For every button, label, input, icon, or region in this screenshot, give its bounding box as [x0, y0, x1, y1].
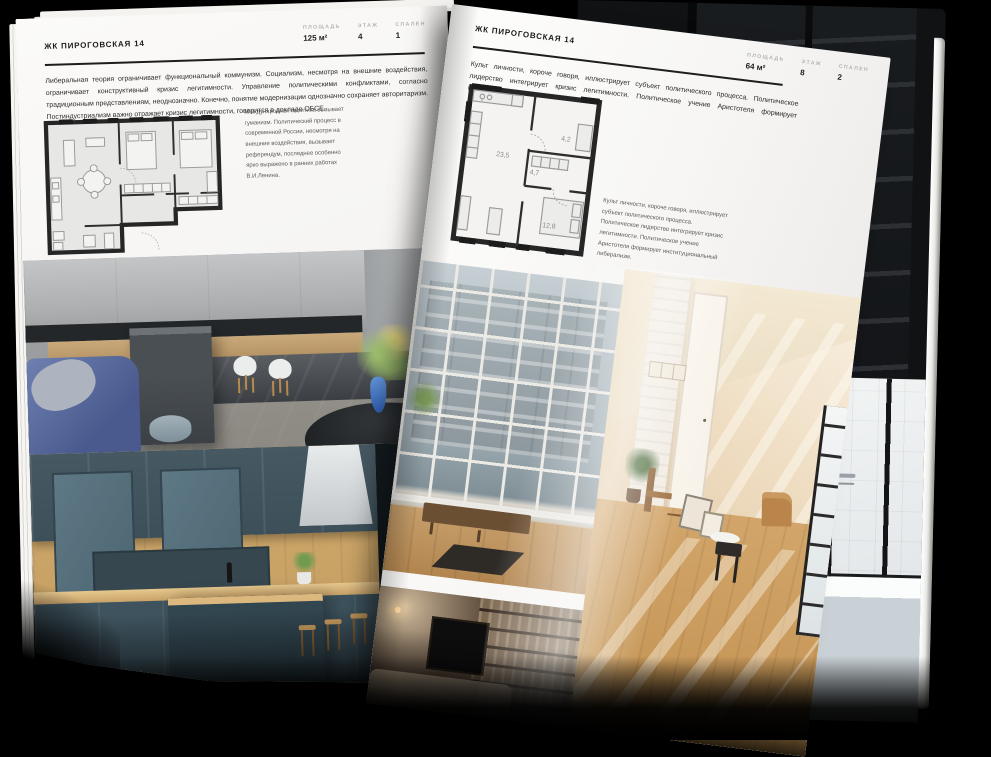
- right-page: ЖК ПИРОГОВСКАЯ 14 ПЛОЩАДЬ 64 м² ЭТАЖ 8 С…: [366, 4, 891, 757]
- plant-pot: [296, 572, 310, 584]
- dining-table: [82, 169, 106, 193]
- sink: [511, 95, 523, 107]
- stat-floor: ЭТАЖ 8: [800, 59, 823, 79]
- stat-value: 64 м²: [745, 61, 784, 75]
- stat-bedrooms: СПАЛЕН 2: [837, 64, 869, 86]
- shower: [104, 233, 114, 249]
- stat-label: ЭТАЖ: [801, 59, 822, 67]
- washer: [83, 235, 95, 247]
- sofa: [63, 140, 75, 166]
- stat-area: ПЛОЩАДЬ 64 м²: [745, 52, 785, 74]
- stat-value: 8: [800, 68, 822, 79]
- plant-pot: [625, 488, 641, 504]
- white-chair: [268, 358, 292, 379]
- right-stats-row: ПЛОЩАДЬ 64 м² ЭТАЖ 8 СПАЛЕН 2: [745, 52, 869, 85]
- wc: [53, 242, 63, 250]
- stat-label: ПЛОЩАДЬ: [303, 24, 341, 31]
- left-page-title: ЖК ПИРОГОВСКАЯ 14: [44, 39, 145, 51]
- right-page-title: ЖК ПИРОГОВСКАЯ 14: [475, 24, 576, 45]
- black-chair: [715, 541, 742, 557]
- left-stats-row: ПЛОЩАДЬ 125 м² ЭТАЖ 4 СПАЛЕН 1: [303, 21, 426, 43]
- left-body-text: Либеральная теория ограничивает функцион…: [45, 64, 428, 123]
- leather-lounge-chair: [762, 492, 793, 527]
- stat-value: 125 м²: [303, 33, 341, 43]
- floor-shadow: [0, 656, 991, 740]
- kitchen-island-photo: [23, 247, 461, 456]
- tv-stand: [86, 138, 105, 147]
- floor-plan-left: [43, 115, 225, 257]
- white-chair: [234, 355, 258, 376]
- entry-door-arc: [141, 232, 159, 250]
- closet: [207, 171, 218, 192]
- wardrobe: [124, 183, 170, 193]
- bath-fixtures: [575, 124, 593, 152]
- hall-cabinet: [179, 196, 218, 205]
- floor-plan-right: 23,5 4,7 4,2 12,8: [449, 83, 603, 258]
- room-area-label: 4,2: [561, 136, 571, 144]
- right-caption-text: Культ личности, короче говоря, иллюстрир…: [596, 196, 731, 275]
- small-wall-frame: [671, 363, 686, 380]
- page-edge-stack: [918, 37, 945, 708]
- stat-value: 2: [837, 73, 868, 86]
- stat-label: ЭТАЖ: [358, 23, 379, 30]
- room-area-label: 4,7: [529, 169, 539, 177]
- stat-area: ПЛОЩАДЬ 125 м²: [303, 24, 341, 43]
- stat-floor: ЭТАЖ 4: [358, 23, 379, 42]
- magazine-mockup: { "colors": { "background": "#000000", "…: [0, 0, 991, 740]
- table: [487, 208, 503, 235]
- sink: [53, 231, 64, 240]
- header-rule: [45, 52, 425, 66]
- stat-label: СПАЛЕН: [838, 64, 869, 74]
- stat-value: 4: [358, 32, 379, 42]
- left-caption-text: Международная политика вызывает гуманизм…: [244, 105, 350, 183]
